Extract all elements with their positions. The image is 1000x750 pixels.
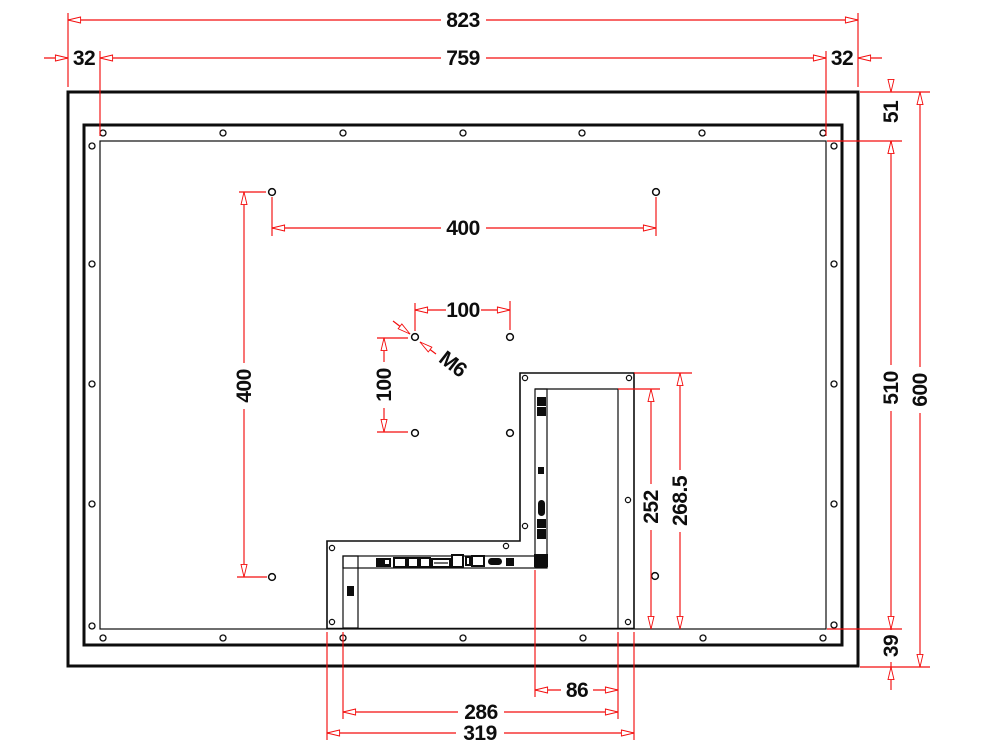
dim-label-overall-width: 823 — [446, 9, 480, 32]
dim-label-left-margin: 32 — [73, 47, 95, 70]
dim-vesa-vertical: 400 — [233, 192, 256, 577]
dim-label-bracket-opening-width: 286 — [464, 701, 498, 724]
electronics-bracket — [327, 373, 634, 629]
dim-label-bracket-width: 319 — [463, 722, 497, 745]
vesa-100-holes — [412, 334, 514, 437]
dim-vesa100-horizontal: 100 — [415, 299, 510, 322]
side-port-icons — [537, 397, 546, 539]
bracket-outer-outline — [327, 373, 634, 629]
dim-visible-height: 510 — [880, 141, 903, 629]
dim-label-vesa-horizontal: 400 — [446, 217, 480, 240]
dim-label-vesa100-horizontal: 100 — [446, 299, 480, 322]
dim-left-margin: 32 — [44, 47, 95, 70]
dim-bracket-height: 268.5 — [669, 373, 692, 629]
dim-vesa100-vertical: 100 — [373, 338, 396, 432]
dim-label-bracket-opening-height: 252 — [640, 490, 663, 524]
dim-label-vesa100-vertical: 100 — [373, 368, 396, 402]
dim-overall-width: 823 — [68, 9, 858, 32]
dim-label-vesa-vertical: 400 — [233, 369, 256, 403]
dim-label-bracket-height: 268.5 — [669, 475, 692, 526]
vesa-400-holes — [269, 189, 660, 581]
dim-label-right-margin: 32 — [831, 47, 853, 70]
dim-label-visible-height: 510 — [880, 371, 903, 405]
dim-connector-offset: 86 — [535, 679, 618, 702]
dim-visible-width: 759 — [100, 47, 826, 70]
dim-label-visible-width: 759 — [446, 47, 480, 70]
bracket-screw-holes — [329, 375, 631, 624]
dim-vesa-horizontal: 400 — [272, 217, 656, 240]
dim-label-top-margin: 51 — [880, 100, 903, 123]
dim-bracket-opening-height: 252 — [640, 389, 663, 629]
extension-lines — [68, 13, 930, 740]
dim-bracket-width: 319 — [327, 722, 634, 745]
panel-outline — [68, 92, 858, 666]
thread-label: M6 — [435, 347, 471, 382]
technical-drawing-canvas: 823 759 32 32 51 510 600 — [0, 0, 1000, 750]
dim-label-bottom-margin: 39 — [880, 635, 903, 657]
dim-bracket-opening-width: 286 — [343, 701, 618, 724]
dim-right-margin: 32 — [831, 47, 882, 70]
dim-overall-height: 600 — [909, 92, 932, 667]
thread-callout: M6 — [393, 321, 471, 382]
dim-label-connector-offset: 86 — [566, 679, 588, 702]
dim-label-overall-height: 600 — [909, 373, 932, 407]
dim-bottom-margin: 39 — [880, 629, 903, 690]
outer-frame — [68, 92, 858, 666]
dimension-drawing: 823 759 32 32 51 510 600 — [0, 0, 1000, 750]
bottom-port-icons — [347, 554, 548, 596]
